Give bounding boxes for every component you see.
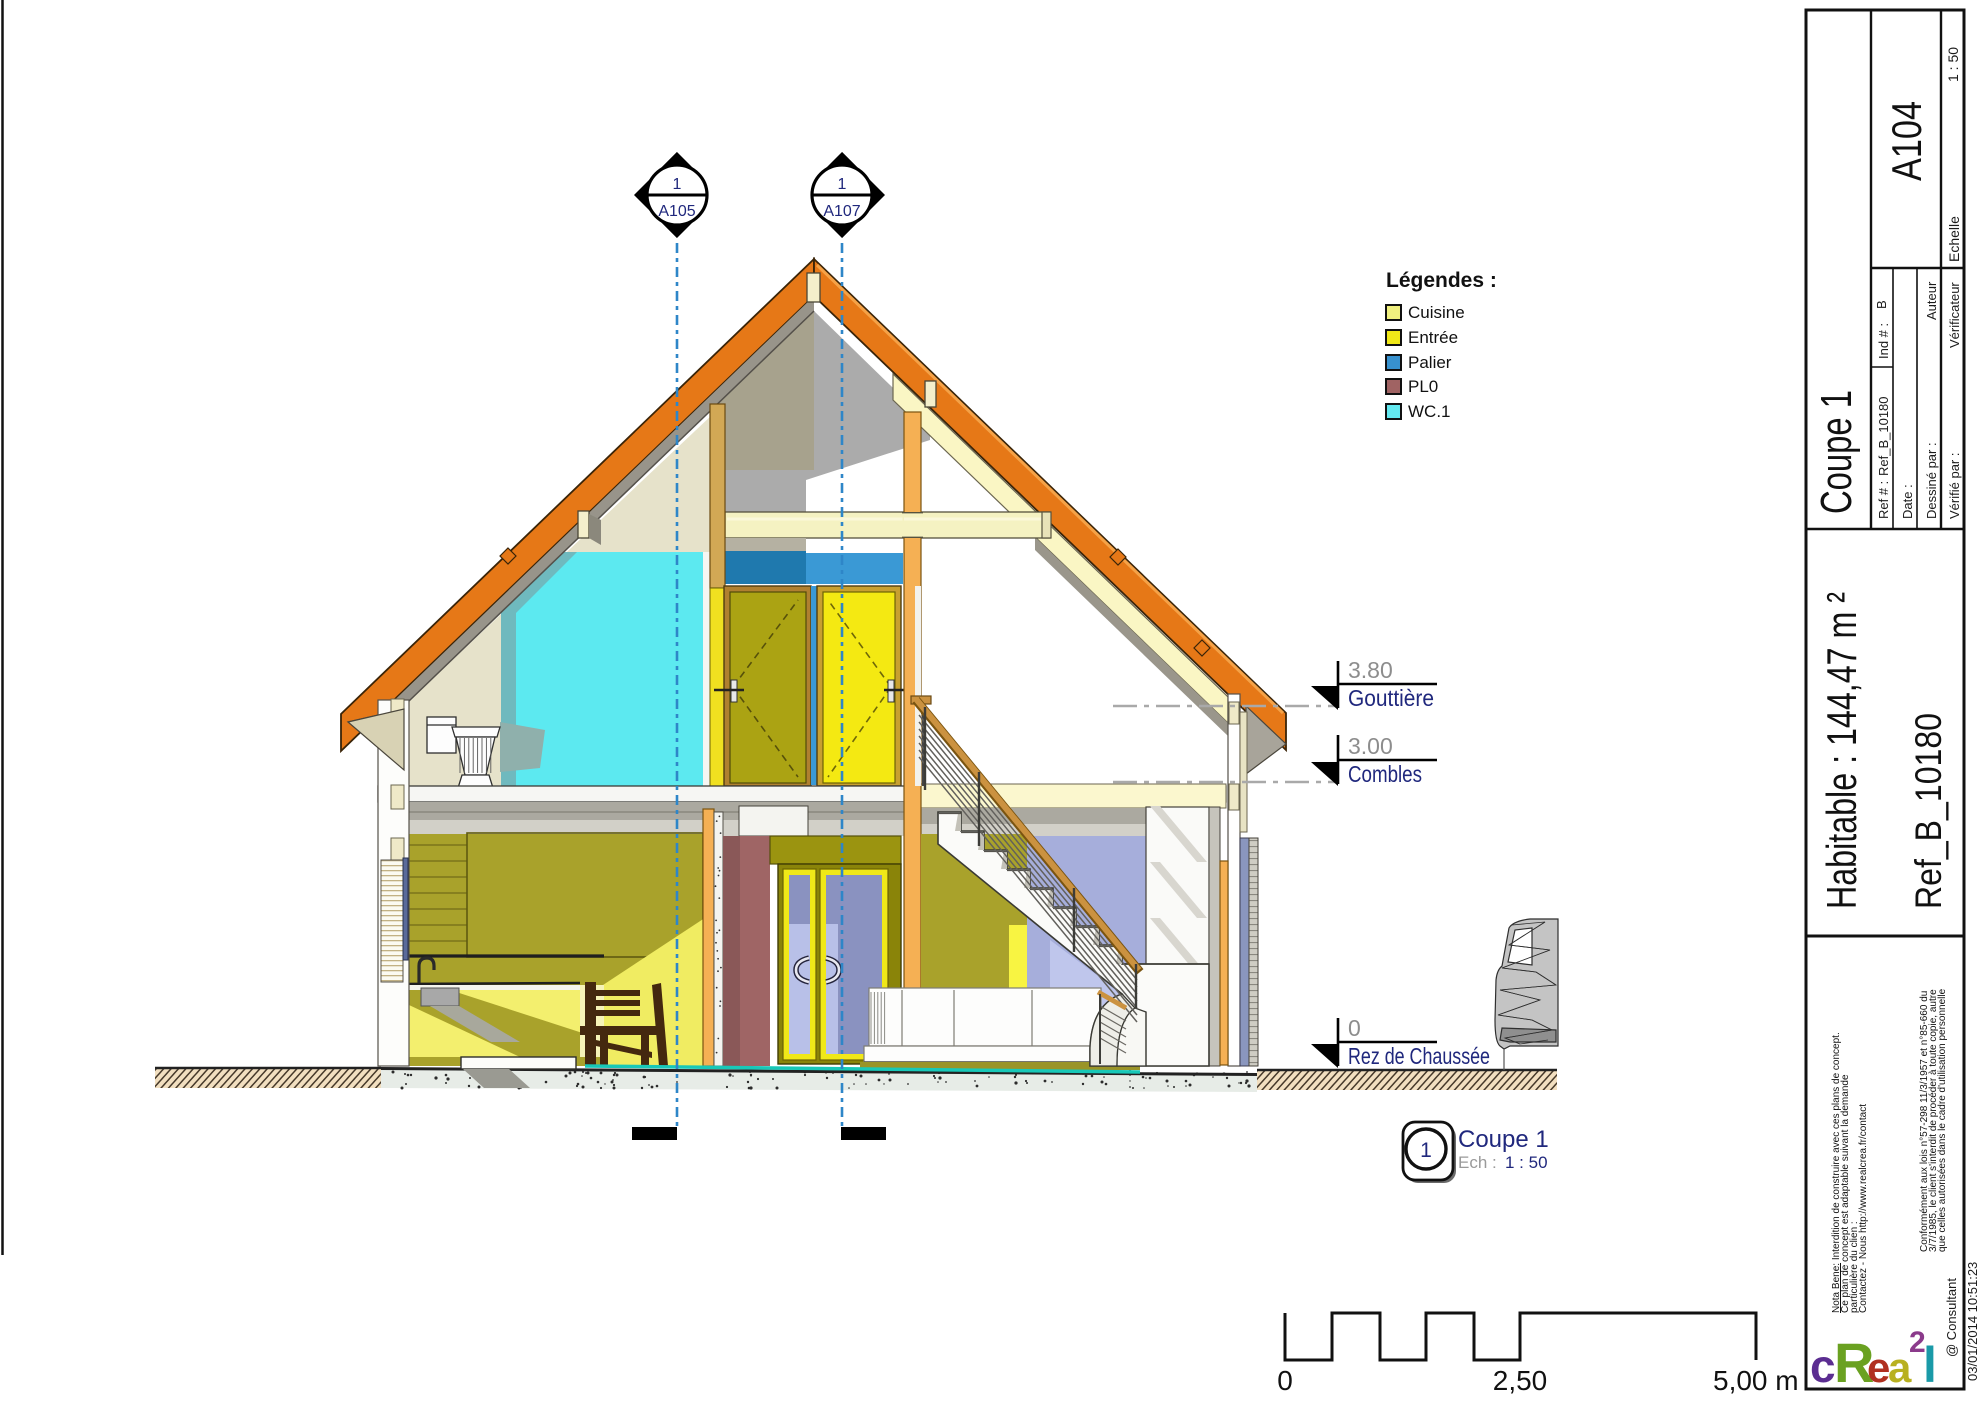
svg-text:3.80: 3.80 [1348,657,1393,683]
svg-text:Habitable : 144,47 m ²: Habitable : 144,47 m ² [1818,592,1865,909]
svg-text:Ref_B_10180: Ref_B_10180 [1908,713,1949,909]
svg-text:0: 0 [1348,1015,1361,1041]
svg-text:WC.1: WC.1 [1408,402,1451,421]
svg-text:1: 1 [838,176,847,193]
svg-text:Coupe 1: Coupe 1 [1812,390,1861,514]
svg-text:Coupe 1: Coupe 1 [1458,1126,1549,1153]
svg-text:5,00 m: 5,00 m [1713,1365,1799,1396]
svg-text:Contactez - Nous http://www.re: Contactez - Nous http://www.realcrea.fr/… [1858,1104,1869,1313]
svg-text:Palier: Palier [1408,353,1452,372]
svg-text:Vérifié par :: Vérifié par : [1947,453,1962,519]
svg-text:1: 1 [673,176,682,193]
svg-text:A105: A105 [658,203,695,220]
svg-text:e: e [1867,1344,1890,1391]
svg-text:B: B [1874,300,1889,309]
svg-text:Combles: Combles [1348,761,1422,787]
svg-text:l: l [1923,1337,1937,1393]
svg-text:Ech :: Ech : [1458,1153,1497,1172]
svg-text:1: 1 [1420,1139,1432,1162]
svg-text:Ref # :: Ref # : [1876,481,1891,519]
svg-text:Echelle: Echelle [1946,216,1962,262]
svg-text:0: 0 [1277,1365,1293,1396]
svg-text:3.00: 3.00 [1348,733,1393,759]
svg-text:1 : 50: 1 : 50 [1945,47,1961,82]
svg-text:Cuisine: Cuisine [1408,303,1465,322]
svg-text:que celles autorisées dans le: que celles autorisées dans le cadre d'ut… [1937,988,1948,1252]
svg-text:@ Consultant: @ Consultant [1944,1278,1959,1357]
svg-text:1 : 50: 1 : 50 [1505,1153,1548,1172]
svg-text:Rez de Chaussée: Rez de Chaussée [1348,1043,1490,1069]
svg-text:A107: A107 [823,203,860,220]
svg-text:c: c [1810,1340,1836,1392]
svg-text:A104: A104 [1883,101,1930,181]
svg-text:Ind # :: Ind # : [1876,323,1891,359]
svg-text:PL0: PL0 [1408,377,1438,396]
svg-text:Gouttière: Gouttière [1348,685,1434,711]
svg-text:03/01/2014 10:51:23: 03/01/2014 10:51:23 [1965,1262,1980,1381]
svg-text:Vérificateur: Vérificateur [1947,282,1962,348]
svg-text:Ref_B_10180: Ref_B_10180 [1876,396,1891,476]
svg-text:Dessiné par :: Dessiné par : [1924,442,1939,519]
svg-text:Légendes :: Légendes : [1386,269,1497,292]
svg-text:2,50: 2,50 [1493,1365,1548,1396]
svg-text:Entrée: Entrée [1408,328,1458,347]
svg-text:Date :: Date : [1900,484,1915,519]
svg-text:Auteur: Auteur [1924,281,1939,320]
